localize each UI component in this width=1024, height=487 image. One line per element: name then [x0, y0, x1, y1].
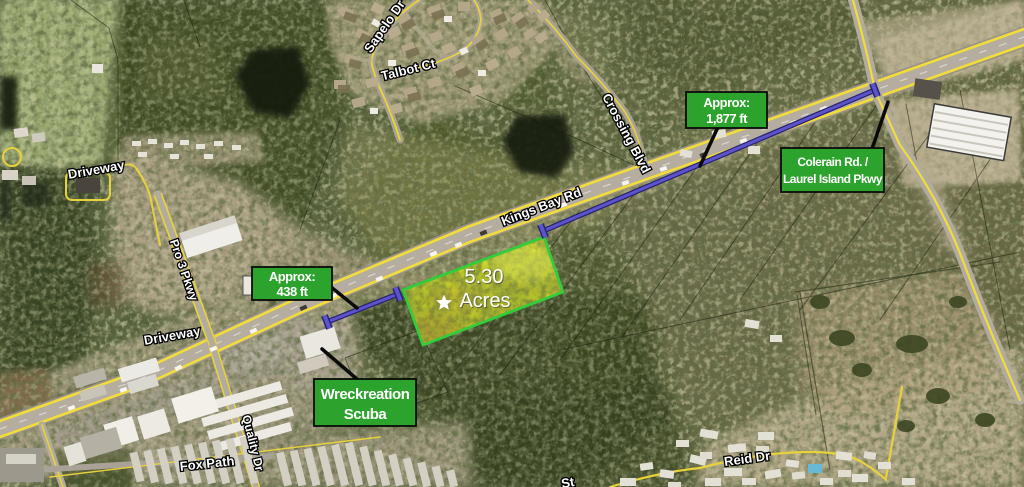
svg-text:Colerain Rd. /: Colerain Rd. /	[797, 155, 869, 169]
svg-text:Approx:: Approx:	[269, 269, 316, 284]
svg-text:1,877 ft: 1,877 ft	[706, 111, 748, 126]
svg-text:Approx:: Approx:	[703, 95, 750, 110]
svg-text:438 ft: 438 ft	[277, 284, 309, 299]
svg-text:Scuba: Scuba	[344, 406, 388, 423]
svg-text:5.30: 5.30	[465, 266, 504, 288]
svg-text:Acres: Acres	[459, 290, 510, 312]
svg-text:Wreckreation: Wreckreation	[321, 386, 410, 403]
svg-text:Laurel Island Pkwy: Laurel Island Pkwy	[783, 172, 883, 186]
